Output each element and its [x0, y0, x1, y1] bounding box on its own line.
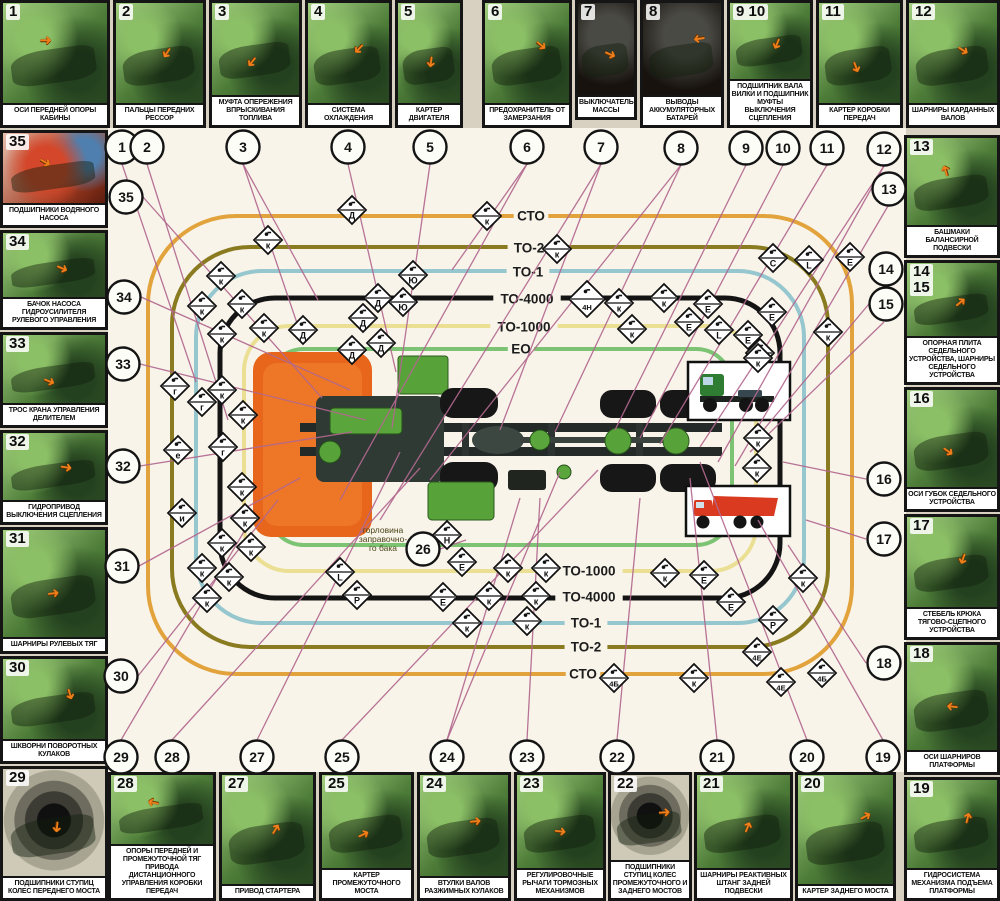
- lubricant-code: к: [219, 277, 224, 287]
- chassis-part: [398, 356, 448, 394]
- lube-point-diamond: к: [680, 664, 708, 692]
- callout-line: [617, 498, 640, 740]
- callout-number: 7: [597, 139, 605, 155]
- ring-label: ТО-4000: [563, 590, 616, 605]
- chassis-part: [472, 426, 524, 454]
- callout-circle-6: 6: [511, 131, 544, 164]
- lube-point-diamond: к: [650, 284, 678, 312]
- oil-can-spout-icon: [222, 535, 226, 537]
- lube-point-diamond: к: [207, 262, 235, 290]
- oil-can-spout-icon: [803, 570, 807, 572]
- callout-circle-33: 33: [107, 348, 140, 381]
- lube-point-diamond: Р: [759, 606, 787, 634]
- oil-can-spout-icon: [487, 208, 491, 210]
- callout-circle-31: 31: [106, 550, 139, 583]
- lubricant-code: Е: [705, 305, 711, 315]
- truck-wheel: [755, 398, 769, 412]
- oil-can-spout-icon: [704, 567, 708, 569]
- dump-truck-inset: [686, 486, 790, 536]
- oil-can-spout-icon: [381, 335, 385, 337]
- callout-line: [806, 520, 866, 539]
- lubricant-code: к: [801, 579, 806, 589]
- lubricant-code: Е: [745, 336, 751, 346]
- lubricant-code: 4Б: [817, 675, 827, 684]
- lubricant-code: 4Е: [752, 654, 761, 663]
- lubricant-code: Д: [349, 211, 356, 221]
- callout-circle-4: 4: [332, 131, 365, 164]
- callout-number: 22: [609, 749, 625, 765]
- oil-can-spout-icon: [182, 505, 186, 507]
- lube-point-diamond: Ю: [389, 288, 417, 316]
- lube-point-diamond: Е: [690, 561, 718, 589]
- oil-can-spout-icon: [536, 588, 540, 590]
- callout-number: 23: [519, 749, 535, 765]
- callout-number: 5: [426, 139, 434, 155]
- callout-circle-7: 7: [585, 131, 618, 164]
- oil-can-spout-icon: [731, 594, 735, 596]
- callout-circle-16: 16: [868, 463, 901, 496]
- oil-can-spout-icon: [268, 232, 272, 234]
- oil-can-spout-icon: [222, 326, 226, 328]
- lubricant-code: к: [249, 548, 254, 558]
- callout-number: 16: [876, 471, 892, 487]
- oil-can-spout-icon: [489, 588, 493, 590]
- callout-number: 9: [742, 140, 750, 156]
- lube-point-diamond: L: [795, 246, 823, 274]
- lubricant-code: и: [179, 514, 185, 524]
- lubricant-code: С: [770, 259, 777, 269]
- lube-point-diamond: 4Н: [569, 281, 605, 317]
- lubricant-code: Ю: [398, 303, 407, 313]
- lubricant-code: L: [337, 573, 343, 583]
- oil-can-spout-icon: [708, 296, 712, 298]
- callout-circle-24: 24: [431, 741, 464, 774]
- oil-can-spout-icon: [251, 539, 255, 541]
- callout-number: 4: [344, 139, 352, 155]
- lubricant-code: 4Б: [609, 680, 619, 689]
- lubricant-code: Е: [728, 603, 734, 613]
- lubricant-code: г: [173, 387, 177, 397]
- lubricant-code: к: [544, 569, 549, 579]
- callout-circle-30: 30: [105, 660, 138, 693]
- oil-can-spout-icon: [546, 560, 550, 562]
- lubricant-code: Е: [769, 313, 775, 323]
- oil-can-spout-icon: [772, 304, 776, 306]
- lubricant-code: Н: [444, 536, 451, 546]
- callout-circle-18: 18: [868, 647, 901, 680]
- oil-can-spout-icon: [202, 560, 206, 562]
- callout-line: [718, 166, 884, 462]
- lube-point-diamond: к: [513, 607, 541, 635]
- oil-can-spout-icon: [694, 670, 698, 672]
- truck-wheel: [739, 398, 753, 412]
- callout-circle-21: 21: [701, 741, 734, 774]
- truck-wheel: [703, 398, 717, 412]
- lube-point-diamond: 4Е: [743, 638, 771, 666]
- lube-point-diamond: Д: [338, 196, 366, 224]
- callout-number: 15: [878, 296, 894, 312]
- callout-number: 29: [113, 749, 129, 765]
- lube-point-diamond: Е: [675, 308, 703, 336]
- oil-can-spout-icon: [719, 322, 723, 324]
- lubricant-code: к: [756, 359, 761, 369]
- lube-point-diamond: к: [743, 454, 771, 482]
- oil-can-spout-icon: [202, 298, 206, 300]
- lubricant-code: к: [240, 488, 245, 498]
- lube-point-diamond: к: [228, 290, 256, 318]
- lubricant-code: к: [220, 391, 225, 401]
- callout-circle-25: 25: [326, 741, 359, 774]
- lubricant-code: к: [262, 329, 267, 339]
- lubricant-code: к: [534, 597, 539, 607]
- lube-point-diamond: к: [188, 554, 216, 582]
- oil-can-spout-icon: [357, 587, 361, 589]
- oil-can-spout-icon: [264, 320, 268, 322]
- oil-can-spout-icon: [809, 252, 813, 254]
- oil-can-spout-icon: [242, 296, 246, 298]
- callout-number: 17: [876, 531, 892, 547]
- lubricant-code: к: [506, 569, 511, 579]
- lubricant-code: L: [716, 331, 722, 341]
- oil-can-spout-icon: [822, 665, 826, 667]
- callout-number: 35: [118, 189, 134, 205]
- lubricant-code: к: [205, 599, 210, 609]
- oil-can-spout-icon: [413, 267, 417, 269]
- lubricant-code: к: [555, 250, 560, 260]
- oil-can-spout-icon: [447, 527, 451, 529]
- chassis-part: [605, 428, 631, 454]
- lube-point-diamond: к: [744, 424, 772, 452]
- lube-point-diamond: к: [453, 609, 481, 637]
- lubricant-code: к: [243, 519, 248, 529]
- lubricant-code: Д: [349, 351, 356, 361]
- callout-circle-22: 22: [601, 741, 634, 774]
- lubricant-code: к: [630, 330, 635, 340]
- chassis-part: [530, 430, 550, 450]
- truck-wheel: [697, 516, 710, 529]
- callout-number: 33: [115, 356, 131, 372]
- callout-number: 27: [249, 749, 265, 765]
- callout-circle-10: 10: [767, 132, 800, 165]
- lubricant-code: к: [240, 305, 245, 315]
- lubricant-code: L: [806, 261, 812, 271]
- lube-point-diamond: к: [618, 315, 646, 343]
- lubricant-code: Е: [847, 258, 853, 268]
- oil-can-spout-icon: [245, 510, 249, 512]
- oil-can-spout-icon: [467, 615, 471, 617]
- oil-can-spout-icon: [781, 674, 785, 676]
- callout-circle-8: 8: [665, 132, 698, 165]
- ring-label: СТО: [569, 667, 597, 682]
- lubricant-code: к: [227, 578, 232, 588]
- callout-circle-3: 3: [227, 131, 260, 164]
- callout-circle-11: 11: [811, 132, 844, 165]
- truck-window: [696, 502, 704, 508]
- chassis-part: [557, 465, 571, 479]
- callout-number: 21: [709, 749, 725, 765]
- callout-circle-34: 34: [108, 281, 141, 314]
- callout-number: 19: [875, 749, 891, 765]
- lube-point-diamond: к: [208, 320, 236, 348]
- oil-can-spout-icon: [403, 294, 407, 296]
- ring-label: ТО-1000: [563, 564, 616, 579]
- callout-circle-15: 15: [870, 288, 903, 321]
- oil-can-spout-icon: [352, 342, 356, 344]
- oil-can-spout-icon: [462, 554, 466, 556]
- lubricant-code: Д: [375, 299, 382, 309]
- lubricant-code: к: [200, 307, 205, 317]
- ring-label: ТО-1: [513, 265, 544, 280]
- callout-circle-20: 20: [791, 741, 824, 774]
- callout-number: 31: [114, 558, 130, 574]
- callout-circle-9: 9: [730, 132, 763, 165]
- callout-number: 14: [878, 261, 894, 277]
- chassis-part: [600, 464, 656, 492]
- lubricant-code: Е: [701, 576, 707, 586]
- lube-point-diamond: L: [326, 558, 354, 586]
- lubricant-code: Д: [360, 319, 367, 329]
- callout-circle-5: 5: [414, 131, 447, 164]
- lube-point-diamond: Ю: [399, 261, 427, 289]
- oil-can-spout-icon: [242, 479, 246, 481]
- oil-can-spout-icon: [632, 321, 636, 323]
- oil-can-spout-icon: [758, 350, 762, 352]
- lubricant-code: Д: [378, 344, 385, 354]
- lube-point-diamond: 4Б: [808, 659, 836, 687]
- lubricant-code: Е: [686, 323, 692, 333]
- oil-can-spout-icon: [557, 241, 561, 243]
- oil-can-spout-icon: [664, 290, 668, 292]
- callout-circle-13: 13: [873, 173, 906, 206]
- callout-circle-2: 2: [131, 131, 164, 164]
- callout-circle-28: 28: [156, 741, 189, 774]
- callout-number: 1: [118, 139, 126, 155]
- truck-window: [703, 377, 713, 385]
- oil-can-spout-icon: [303, 322, 307, 324]
- callout-number: 8: [677, 140, 685, 156]
- lubricant-code: к: [200, 569, 205, 579]
- lube-point-diamond: к: [789, 564, 817, 592]
- lubricant-code: к: [663, 574, 668, 584]
- lubricant-code: г: [200, 403, 204, 413]
- lube-point-diamond: к: [229, 401, 257, 429]
- maintenance-chart-poster: 1➜ОСИ ПЕРЕДНЕЙ ОПОРЫ КАБИНЫ2➜ПАЛЬЦЫ ПЕРЕ…: [0, 0, 1000, 901]
- lube-point-diamond: Д: [289, 316, 317, 344]
- truck-chassis-illustration: [253, 352, 722, 537]
- lube-point-diamond: к: [651, 559, 679, 587]
- lubricant-code: Е: [459, 563, 465, 573]
- callout-number: 30: [113, 668, 129, 684]
- oil-can-spout-icon: [207, 590, 211, 592]
- lube-point-diamond: Р: [343, 581, 371, 609]
- lube-point-diamond: г: [209, 433, 237, 461]
- lube-point-diamond: г: [161, 372, 189, 400]
- lube-point-diamond: L: [705, 316, 733, 344]
- lubricant-code: к: [220, 544, 225, 554]
- lube-point-diamond: к: [605, 289, 633, 317]
- callout-circle-23: 23: [511, 741, 544, 774]
- lube-point-diamond: к: [475, 582, 503, 610]
- chassis-part: [428, 482, 494, 520]
- lubricant-code: к: [756, 439, 761, 449]
- lubricant-code: е: [175, 451, 180, 461]
- lubricant-code: к: [525, 622, 530, 632]
- lubricant-code: г: [221, 448, 225, 458]
- oil-can-spout-icon: [665, 565, 669, 567]
- callout-number: 34: [116, 289, 132, 305]
- callout-number: 20: [799, 749, 815, 765]
- oil-can-spout-icon: [202, 394, 206, 396]
- lube-point-diamond: Е: [429, 583, 457, 611]
- lubricant-code: Е: [440, 598, 446, 608]
- lubricant-code: к: [662, 299, 667, 309]
- callout-circle-19: 19: [867, 741, 900, 774]
- callout-number: 13: [881, 181, 897, 197]
- lube-point-diamond: Е: [717, 588, 745, 616]
- oil-can-spout-icon: [850, 249, 854, 251]
- lube-point-diamond: к: [494, 554, 522, 582]
- oil-can-spout-icon: [773, 250, 777, 252]
- callout-number: 24: [439, 749, 455, 765]
- chassis-part: [330, 408, 402, 434]
- lubricant-code: Д: [300, 331, 307, 341]
- lubricant-code: к: [617, 304, 622, 314]
- callout-circle-26: 26: [407, 533, 440, 566]
- oil-can-spout-icon: [689, 314, 693, 316]
- oil-can-spout-icon: [748, 327, 752, 329]
- lube-point-diamond: Е: [836, 243, 864, 271]
- callout-circle-14: 14: [870, 253, 903, 286]
- lubricant-code: к: [826, 333, 831, 343]
- ring-label: СТО: [517, 209, 545, 224]
- callout-number: 32: [115, 458, 131, 474]
- callout-circle-27: 27: [241, 741, 274, 774]
- callout-circle-12: 12: [868, 133, 901, 166]
- oil-can-spout-icon: [587, 289, 591, 291]
- lubricant-code: Р: [770, 621, 776, 631]
- oil-can-spout-icon: [178, 442, 182, 444]
- lubricant-code: Р: [354, 596, 360, 606]
- lubricant-code: Ю: [408, 276, 417, 286]
- lube-point-diamond: Д: [367, 329, 395, 357]
- chassis-part: [440, 388, 498, 418]
- oil-can-spout-icon: [175, 378, 179, 380]
- lube-point-diamond: Е: [694, 290, 722, 318]
- ring-label: ТО-2: [571, 640, 601, 655]
- callout-line: [121, 518, 252, 740]
- callout-line: [700, 166, 884, 447]
- lube-point-diamond: е: [164, 436, 192, 464]
- oil-can-spout-icon: [363, 310, 367, 312]
- callout-circle-32: 32: [107, 450, 140, 483]
- lubricant-code: к: [485, 217, 490, 227]
- lubricant-code: к: [220, 335, 225, 345]
- callout-number: 11: [820, 140, 835, 156]
- lube-point-diamond: к: [522, 582, 550, 610]
- callout-number: 26: [415, 541, 431, 557]
- callout-number: 6: [523, 139, 531, 155]
- oil-can-spout-icon: [614, 670, 618, 672]
- oil-can-spout-icon: [757, 460, 761, 462]
- oil-can-spout-icon: [352, 202, 356, 204]
- oil-can-spout-icon: [443, 589, 447, 591]
- callout-number: 18: [876, 655, 892, 671]
- callout-number: 3: [239, 139, 247, 155]
- lubricant-code: к: [241, 416, 246, 426]
- oil-can-spout-icon: [378, 290, 382, 292]
- ring-label: ЕО: [511, 342, 531, 357]
- oil-can-spout-icon: [758, 430, 762, 432]
- filler-neck-note: го бака: [369, 543, 397, 553]
- lubricant-code: к: [487, 597, 492, 607]
- callout-number: 12: [876, 141, 892, 157]
- callout-circle-17: 17: [868, 523, 901, 556]
- oil-can-spout-icon: [527, 613, 531, 615]
- lubricant-code: к: [755, 469, 760, 479]
- lubricant-code: 4Н: [582, 303, 592, 312]
- oil-can-spout-icon: [223, 439, 227, 441]
- ring-label: ТО-4000: [501, 292, 554, 307]
- oil-can-spout-icon: [221, 268, 225, 270]
- callout-line: [243, 164, 318, 300]
- lube-point-diamond: к: [254, 226, 282, 254]
- callout-number: 10: [775, 140, 791, 156]
- callout-number: 2: [143, 139, 151, 155]
- callout-number: 25: [334, 749, 350, 765]
- callout-circle-35: 35: [110, 181, 143, 214]
- chassis-part: [319, 441, 341, 463]
- oil-can-spout-icon: [340, 564, 344, 566]
- oil-can-spout-icon: [757, 644, 761, 646]
- oil-can-spout-icon: [508, 560, 512, 562]
- lube-point-diamond: к: [228, 473, 256, 501]
- lubricant-code: к: [266, 241, 271, 251]
- truck-wheel: [734, 516, 747, 529]
- callout-circle-29: 29: [105, 741, 138, 774]
- lube-point-diamond: Д: [364, 284, 392, 312]
- oil-can-spout-icon: [229, 569, 233, 571]
- oil-can-spout-icon: [619, 295, 623, 297]
- ring-label: ТО-1000: [498, 320, 551, 335]
- lubricant-code: 4Е: [776, 684, 785, 693]
- lubricant-code: к: [692, 679, 697, 689]
- lubricant-code: к: [465, 624, 470, 634]
- ring-label: ТО-2: [514, 241, 544, 256]
- ring-label: ТО-1: [571, 616, 602, 631]
- oil-can-spout-icon: [222, 382, 226, 384]
- oil-can-spout-icon: [773, 612, 777, 614]
- oil-can-spout-icon: [828, 324, 832, 326]
- callout-number: 28: [164, 749, 180, 765]
- lube-point-diamond: к: [250, 314, 278, 342]
- oil-can-spout-icon: [243, 407, 247, 409]
- chassis-part: [508, 470, 546, 490]
- route-diagram-overlay: СТОТО-2ТО-1ТО-4000ТО-1000ЕОТО-1000ТО-400…: [0, 0, 1000, 901]
